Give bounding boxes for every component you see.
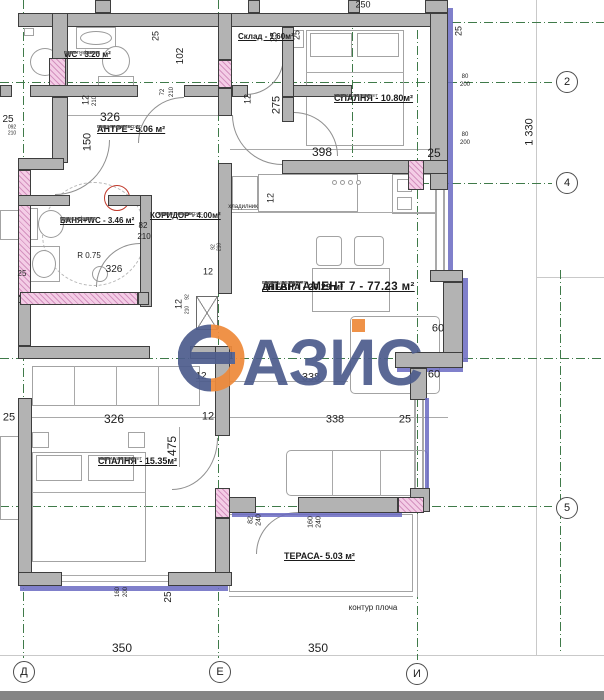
grid-bubble-4: 4	[556, 172, 578, 194]
room-name: ТЕРАСА- 5.03 м²	[284, 551, 355, 563]
grid-bubble-label: 4	[564, 177, 570, 189]
dimension-label: 250	[355, 1, 370, 10]
dimension-label: хладилник	[228, 204, 257, 210]
dimension-label: 80	[462, 132, 469, 138]
grid-bubble-2: 2	[556, 71, 578, 93]
dimension-label: R 0.75	[77, 252, 101, 260]
dimension-label: 160	[115, 587, 121, 597]
grid-bubble-label: 5	[564, 502, 570, 514]
finish-line: таван - латекс	[334, 93, 370, 100]
dimension-label: 1 330	[525, 118, 536, 146]
dimension-label: 12	[267, 193, 276, 203]
dimension-label: 240	[256, 514, 263, 526]
floor-plan: 2 4 5 Д Е И WC - 3.20 м² под - теракот с…	[0, 0, 604, 700]
dimension-label: 25	[293, 30, 302, 40]
dimension-label: 25	[399, 415, 411, 426]
dimension-label: 25	[152, 31, 161, 41]
dimension-label: 12	[244, 94, 253, 104]
dimension-label: 210	[218, 243, 223, 251]
dimension-label: 12	[203, 268, 213, 277]
room-name: Склад - 1.60м²	[238, 32, 294, 42]
grid-bubble-5: 5	[556, 497, 578, 519]
dimension-label: 210	[186, 306, 191, 314]
dimension-label: 210	[169, 87, 175, 97]
dimension-label: 12	[202, 412, 214, 423]
grid-bubble-label: 2	[564, 76, 570, 88]
dimension-label: 240	[316, 516, 323, 528]
dimension-label: 82	[248, 516, 255, 524]
dimension-label: 82	[139, 222, 148, 230]
dimension-label: 326	[104, 413, 124, 425]
bottom-bar	[0, 691, 604, 700]
finish-line: таван - латекс	[158, 211, 194, 218]
dimension-label: 25	[270, 32, 279, 42]
dimension-label: 200	[460, 140, 470, 146]
dimension-label: 160	[308, 516, 315, 528]
dimension-label: 210	[92, 96, 98, 106]
dimension-label: 350	[308, 642, 328, 654]
dimension-label: 102	[176, 48, 186, 65]
dimension-label: 200	[123, 587, 129, 597]
grid-bubble-e: Е	[209, 661, 231, 683]
grid-bubble-label: Д	[20, 666, 27, 678]
dimension-label: 326	[100, 111, 120, 123]
dimension-label: контур плоча	[349, 604, 398, 612]
finish-line: таван - латекс	[97, 124, 133, 131]
dimension-label: 275	[272, 96, 283, 114]
dimension-label: 200	[460, 82, 470, 88]
dimension-label: 25	[2, 115, 13, 125]
grid-bubble-label: И	[413, 668, 421, 680]
dimension-label: 338	[326, 415, 344, 426]
dimension-label: 25	[455, 26, 464, 36]
watermark-text: АЗИС	[242, 325, 422, 398]
dimension-label: 326	[106, 265, 123, 275]
dimension-label: 72	[160, 89, 166, 96]
dimension-label: 25	[164, 591, 174, 602]
grid-bubble-i: И	[406, 663, 428, 685]
dimension-label: 25	[3, 413, 15, 424]
grid-bubble-label: Е	[216, 666, 223, 678]
watermark-logo: АЗИС	[178, 318, 440, 398]
finish-line: таван - латекс	[262, 280, 298, 287]
dimension-label: 210	[137, 233, 150, 241]
dimension-label: 92	[186, 294, 191, 300]
dimension-label: 12	[82, 95, 91, 105]
dimension-label: 210	[8, 132, 16, 137]
dimension-label: 350	[112, 642, 132, 654]
watermark-o-bar-icon	[179, 352, 235, 364]
finish-line: таван - латекс	[98, 456, 134, 463]
dimension-label: 25	[18, 270, 27, 278]
dimension-label: 475	[166, 436, 178, 456]
dimension-label: 398	[312, 146, 332, 158]
dimension-label: 80	[462, 74, 469, 80]
dimension-label: 12	[175, 299, 184, 309]
dimension-label: 150	[83, 133, 94, 151]
finish-line: таван - латекс	[64, 50, 100, 57]
grid-bubble-d: Д	[13, 661, 35, 683]
finish-line: таван - латекс	[60, 216, 96, 223]
dimension-label: 25	[427, 147, 440, 159]
